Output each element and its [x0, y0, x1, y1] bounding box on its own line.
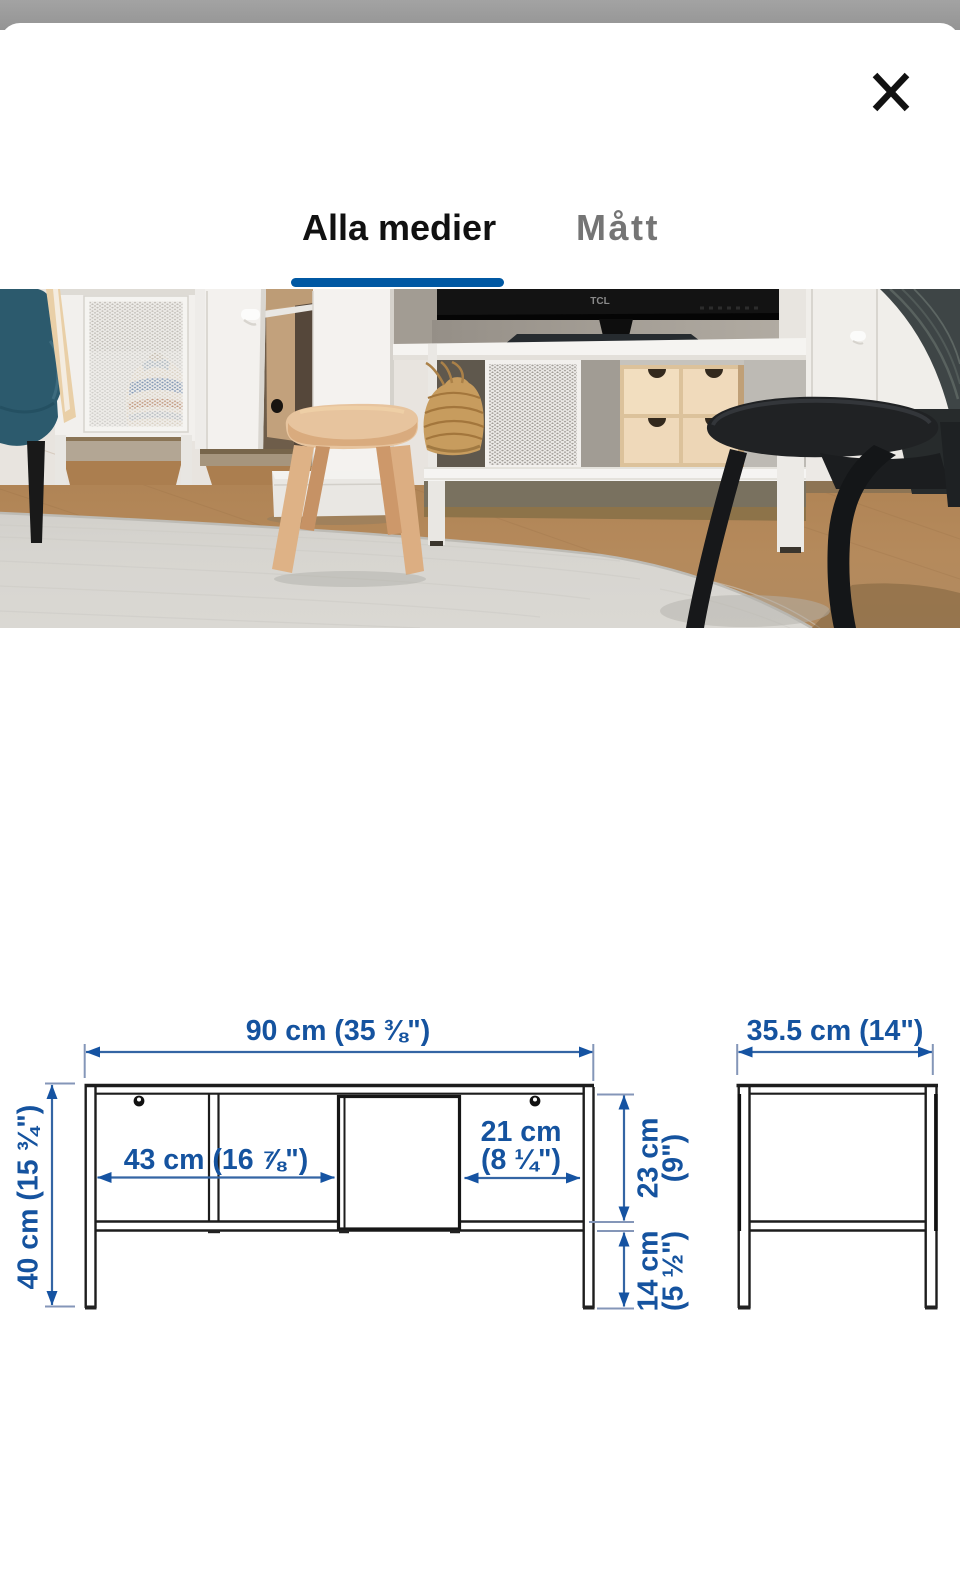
svg-text:40 cm (15 ¾"): 40 cm (15 ¾"): [13, 1105, 45, 1290]
svg-text:35.5 cm (14"): 35.5 cm (14"): [747, 1015, 924, 1047]
svg-text:43 cm (16 ⅞"): 43 cm (16 ⅞"): [124, 1144, 309, 1176]
svg-text:(5 ½"): (5 ½"): [658, 1231, 690, 1311]
svg-text:90 cm (35 ⅜"): 90 cm (35 ⅜"): [246, 1015, 431, 1047]
svg-text:(8 ¼"): (8 ¼"): [481, 1144, 561, 1176]
svg-text:(9"): (9"): [658, 1134, 690, 1182]
svg-text:TCL: TCL: [590, 296, 609, 307]
